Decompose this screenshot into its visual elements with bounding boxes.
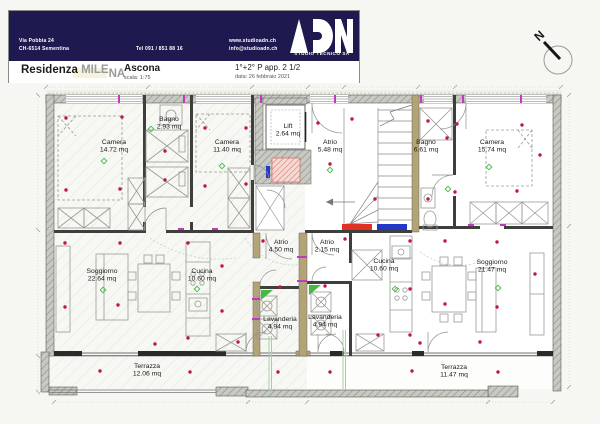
room-label-soggiorno-14: Soggiorno21.47 mq — [477, 259, 508, 273]
ceiling-light-symbol — [316, 121, 319, 124]
ceiling-light-symbol — [520, 123, 523, 126]
ceiling-light-symbol — [408, 239, 411, 242]
ceiling-light-symbol — [63, 305, 66, 308]
room-label-camera-2: Camera11.40 mq — [213, 139, 241, 153]
ceiling-light-symbol — [538, 153, 541, 156]
ceiling-light-symbol — [443, 239, 446, 242]
ceiling-light-symbol — [496, 370, 499, 373]
room-label-terrazza-16: Terrazza11.47 mq — [440, 364, 468, 378]
ceiling-light-symbol — [408, 287, 411, 290]
ceiling-light-symbol — [188, 370, 191, 373]
ceiling-light-symbol — [495, 240, 498, 243]
ceiling-light-symbol — [478, 340, 481, 343]
ceiling-light-symbol — [453, 190, 456, 193]
ceiling-light-symbol — [515, 189, 518, 192]
ceiling-light-symbol — [376, 333, 379, 336]
room-label-camera-6: Camera15.74 mq — [478, 139, 507, 153]
ceiling-light-symbol — [455, 122, 458, 125]
ceiling-light-symbol — [64, 116, 67, 119]
ceiling-light-symbol — [328, 370, 331, 373]
room-label-cucina-11: Cucina10.60 mq — [370, 258, 399, 272]
ceiling-light-symbol — [278, 285, 281, 288]
ceiling-light-symbol — [63, 241, 66, 244]
ceiling-light-symbol — [373, 197, 376, 200]
floor-plan-sheet: Via Pobbia 24 CH-6514 Sementina Tel 091 … — [0, 0, 600, 424]
ceiling-light-symbol — [495, 305, 498, 308]
ceiling-light-symbol — [203, 126, 206, 129]
ceiling-light-symbol — [120, 115, 123, 118]
room-label-lavanderia-13: Lavanderia4.94 mq — [308, 314, 342, 328]
ceiling-light-symbol — [328, 162, 331, 165]
ceiling-light-symbol — [276, 370, 279, 373]
ceiling-light-symbol — [153, 342, 156, 345]
ceiling-light-symbol — [244, 182, 247, 185]
ceiling-light-symbol — [118, 241, 121, 244]
room-label-cucina-8: Cucina10.60 mq — [188, 268, 217, 282]
ceiling-light-symbol — [186, 336, 189, 339]
ceiling-light-symbol — [220, 264, 223, 267]
room-label-bagno-1: Bagno2.93 mq — [157, 116, 182, 130]
ceiling-light-symbol — [236, 340, 239, 343]
ceiling-light-symbol — [323, 284, 326, 287]
ceiling-light-symbol — [64, 188, 67, 191]
room-label-terrazza-15: Terrazza12.06 mq — [133, 363, 162, 377]
ceiling-light-symbol — [220, 309, 223, 312]
ceiling-light-symbol — [116, 303, 119, 306]
ceiling-light-symbol — [163, 178, 166, 181]
room-label-bagno-5: Bagno6.61 mq — [414, 139, 439, 153]
ceiling-light-symbol — [418, 341, 421, 344]
room-label-camera-0: Camera14.72 mq — [100, 139, 129, 153]
ceiling-light-symbol — [261, 239, 264, 242]
ceiling-light-symbol — [118, 187, 121, 190]
ceiling-light-symbol — [98, 369, 101, 372]
ceiling-light-symbol — [533, 272, 536, 275]
ceiling-light-symbol — [350, 117, 353, 120]
floor-plan-drawing: Camera14.72 mqBagno2.93 mqCamera11.40 mq… — [0, 0, 600, 424]
ceiling-light-symbol — [244, 126, 247, 129]
ceiling-light-symbol — [343, 237, 346, 240]
ceiling-light-symbol — [426, 197, 429, 200]
ceiling-light-symbol — [163, 149, 166, 152]
room-label-lavanderia-12: Lavanderia4.94 mq — [263, 316, 297, 330]
ceiling-light-symbol — [186, 241, 189, 244]
ceiling-light-symbol — [203, 184, 206, 187]
ceiling-light-symbol — [445, 136, 448, 139]
room-label-soggiorno-7: Soggiorno22.64 mq — [87, 268, 118, 282]
ceiling-light-symbol — [426, 119, 429, 122]
ceiling-light-symbol — [443, 302, 446, 305]
ceiling-light-symbol — [408, 333, 411, 336]
ceiling-light-symbol — [410, 369, 413, 372]
